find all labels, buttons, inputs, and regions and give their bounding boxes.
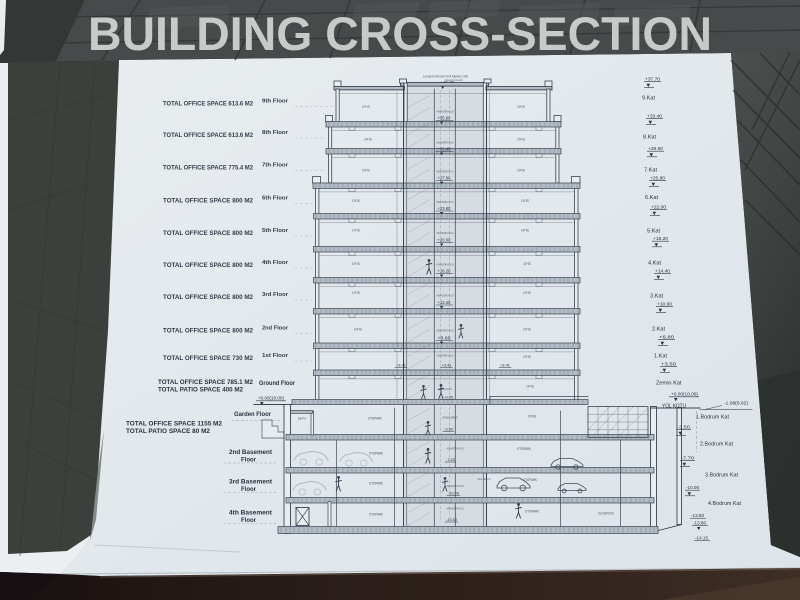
svg-text:-0.05: -0.05	[444, 396, 453, 400]
svg-text:TOTAL PATIO SPACE 400 M2: TOTAL PATIO SPACE 400 M2	[158, 387, 244, 394]
svg-text:+20.00: +20.00	[438, 238, 452, 243]
svg-text:Garden Floor: Garden Floor	[234, 412, 272, 418]
svg-text:TOTAL OFFICE SPACE 1155 M2: TOTAL OFFICE SPACE 1155 M2	[126, 420, 222, 427]
svg-text:OFIS: OFIS	[362, 105, 371, 109]
svg-text:ASANSÖR HOLÜ: ASANSÖR HOLÜ	[447, 484, 464, 488]
svg-text:OTOPARK: OTOPARK	[517, 447, 532, 451]
svg-text:ASANSÖR HOLÜ: ASANSÖR HOLÜ	[437, 141, 454, 145]
svg-text:6.Kat: 6.Kat	[645, 195, 659, 201]
svg-text:7th Floor: 7th Floor	[262, 163, 289, 169]
svg-text:TOTAL OFFICE SPACE 800 M2: TOTAL OFFICE SPACE 800 M2	[163, 329, 254, 335]
svg-text:TOTAL OFFICE SPACE 800 M2: TOTAL OFFICE SPACE 800 M2	[163, 263, 254, 269]
svg-text:2.Bodrum Kat: 2.Bodrum Kat	[700, 442, 734, 448]
svg-text:8th Floor: 8th Floor	[262, 130, 289, 136]
svg-text:OFIS: OFIS	[521, 229, 530, 233]
svg-text:OFIS: OFIS	[362, 169, 371, 173]
svg-text:2nd Basement: 2nd Basement	[229, 450, 272, 456]
svg-text:8.Kat: 8.Kat	[643, 135, 657, 141]
svg-text:SU DEPOSU: SU DEPOSU	[598, 512, 615, 516]
svg-text:ASANSÖR HOLÜ: ASANSÖR HOLÜ	[437, 200, 454, 204]
svg-text:3.Kat: 3.Kat	[650, 294, 664, 300]
svg-text:1.Bodrum Kat: 1.Bodrum Kat	[696, 415, 730, 421]
svg-text:ASANSÖR HOLÜ: ASANSÖR HOLÜ	[437, 170, 454, 174]
svg-text:OFIS: OFIS	[517, 169, 526, 173]
svg-text:-10.00: -10.00	[448, 492, 459, 496]
svg-text:OFIS: OFIS	[354, 328, 363, 332]
svg-text:-10.00: -10.00	[686, 485, 699, 490]
svg-text:ASANSÖR HOLÜ: ASANSÖR HOLÜ	[437, 329, 454, 333]
svg-text:OFIS: OFIS	[521, 199, 530, 203]
svg-text:-7.70: -7.70	[681, 456, 695, 461]
svg-text:+23.80: +23.80	[438, 206, 452, 211]
svg-text:5.Kat: 5.Kat	[647, 229, 661, 235]
svg-text:ASANSÖR HOLÜ: ASANSÖR HOLÜ	[437, 110, 454, 114]
svg-text:4th Floor: 4th Floor	[262, 260, 289, 266]
svg-text:TOTAL OFFICE SPACE 800 M2: TOTAL OFFICE SPACE 800 M2	[163, 199, 254, 205]
svg-text:2nd Floor: 2nd Floor	[262, 326, 289, 332]
svg-text:GİRİŞ HOLÜ: GİRİŞ HOLÜ	[438, 386, 452, 391]
svg-text:6th Floor: 6th Floor	[262, 196, 289, 202]
svg-text:YANGIN MERD.: YANGIN MERD.	[442, 416, 458, 420]
svg-text:OFIS: OFIS	[352, 262, 361, 266]
svg-text:OFIS: OFIS	[352, 199, 361, 203]
svg-text:OTOPARK: OTOPARK	[525, 510, 540, 514]
svg-text:ASANSÖR HOLÜ: ASANSÖR HOLÜ	[437, 294, 454, 298]
svg-text:OFIS: OFIS	[526, 385, 535, 389]
svg-text:+37.70: +37.70	[645, 77, 660, 82]
svg-text:3rd Basement: 3rd Basement	[229, 480, 272, 486]
svg-text:TOTAL OFFICE SPACE 800 M2: TOTAL OFFICE SPACE 800 M2	[163, 295, 254, 301]
svg-text:+10.60: +10.60	[657, 302, 672, 307]
svg-text:5th Floor: 5th Floor	[262, 228, 289, 234]
svg-text:+0.00(10.00): +0.00(10.00)	[671, 392, 698, 397]
svg-text:+0.00(10.00): +0.00(10.00)	[258, 396, 284, 401]
svg-text:OTOPARK: OTOPARK	[369, 513, 384, 517]
svg-text:3.Bodrum Kat: 3.Bodrum Kat	[705, 473, 739, 479]
svg-text:TOTAL OFFICE SPACE 730 M2: TOTAL OFFICE SPACE 730 M2	[163, 356, 254, 362]
svg-text:Floor: Floor	[241, 487, 257, 493]
svg-text:-3.50: -3.50	[444, 428, 453, 432]
svg-text:TOTAL OFFICE SPACE 800 M2: TOTAL OFFICE SPACE 800 M2	[163, 231, 254, 237]
svg-text:Zemin Kat: Zemin Kat	[656, 381, 682, 387]
svg-text:-1.08(8.92): -1.08(8.92)	[724, 401, 749, 406]
svg-text:9.Kat: 9.Kat	[642, 96, 656, 102]
svg-text:-13.50: -13.50	[691, 513, 705, 518]
svg-text:OFIS: OFIS	[517, 138, 526, 142]
svg-text:Floor: Floor	[241, 458, 257, 464]
svg-text:1.Kat: 1.Kat	[654, 354, 668, 360]
svg-text:+18.20: +18.20	[653, 236, 668, 241]
svg-text:OFIS: OFIS	[352, 291, 361, 295]
svg-text:+27.60: +27.60	[438, 176, 452, 181]
svg-text:7.Kat: 7.Kat	[644, 168, 658, 174]
svg-text:1st Floor: 1st Floor	[262, 353, 289, 359]
svg-text:TOTAL PATIO SPACE 80 M2: TOTAL PATIO SPACE 80 M2	[126, 428, 210, 435]
svg-text:OFIS: OFIS	[364, 138, 373, 142]
svg-text:OFIS: OFIS	[528, 415, 537, 419]
svg-text:BUILDING CROSS-SECTION: BUILDING CROSS-SECTION	[88, 7, 712, 60]
svg-text:OFIS: OFIS	[523, 355, 532, 359]
svg-text:3rd Floor: 3rd Floor	[262, 292, 289, 298]
svg-text:2.Kat: 2.Kat	[652, 327, 666, 333]
svg-text:OFIS: OFIS	[523, 328, 532, 332]
svg-text:DEPO: DEPO	[298, 417, 307, 421]
svg-text:+33.40: +33.40	[647, 114, 662, 119]
svg-text:-3.50: -3.50	[677, 425, 691, 430]
svg-text:-14.15: -14.15	[695, 536, 709, 541]
svg-text:TOTAL OFFICE SPACE 613.6 M2: TOTAL OFFICE SPACE 613.6 M2	[163, 133, 254, 139]
svg-text:TOTAL OFFICE SPACE 785.1 M2: TOTAL OFFICE SPACE 785.1 M2	[158, 379, 254, 386]
svg-text:ASANSÖR HOLÜ: ASANSÖR HOLÜ	[437, 231, 454, 235]
svg-text:Veh.Ramp: Veh.Ramp	[478, 477, 491, 481]
svg-text:+8.60: +8.60	[438, 336, 452, 341]
svg-text:Ground Floor: Ground Floor	[259, 381, 296, 387]
svg-text:OTOPARK: OTOPARK	[369, 482, 384, 486]
svg-text:YOL KOTU: YOL KOTU	[662, 404, 686, 410]
svg-text:OTOPARK: OTOPARK	[368, 417, 383, 421]
svg-text:OTOPARK: OTOPARK	[369, 452, 384, 456]
svg-text:+22.00: +22.00	[651, 205, 666, 210]
svg-text:+35.60: +35.60	[438, 116, 452, 121]
svg-text:+3.41: +3.41	[442, 364, 452, 368]
svg-text:ASANSÖR HOLÜ: ASANSÖR HOLÜ	[437, 354, 454, 358]
svg-text:+3.41: +3.41	[500, 364, 510, 368]
svg-text:+14.40: +14.40	[655, 269, 670, 274]
svg-text:+3.41: +3.41	[396, 364, 406, 368]
svg-text:+12.40: +12.40	[438, 300, 452, 305]
svg-text:TOTAL OFFICE SPACE 613.6 M2: TOTAL OFFICE SPACE 613.6 M2	[163, 102, 254, 108]
svg-text:-13.50: -13.50	[446, 518, 457, 522]
svg-text:+29.60: +29.60	[648, 146, 663, 151]
svg-text:OFIS: OFIS	[352, 229, 361, 233]
svg-text:TOTAL OFFICE SPACE 775.4 M2: TOTAL OFFICE SPACE 775.4 M2	[163, 166, 254, 172]
svg-text:+16.20: +16.20	[438, 269, 452, 274]
svg-text:4.Bodrum Kat: 4.Bodrum Kat	[708, 501, 742, 507]
svg-text:+31.40: +31.40	[438, 147, 452, 152]
svg-text:ASANSÖR HOLÜ: ASANSÖR HOLÜ	[437, 263, 454, 267]
svg-text:Floor: Floor	[241, 518, 257, 524]
svg-text:-13.80: -13.80	[693, 521, 707, 526]
svg-text:OFIS: OFIS	[523, 262, 532, 266]
svg-text:ASANSÖR HOLÜ: ASANSÖR HOLÜ	[447, 447, 464, 451]
svg-text:+6.80: +6.80	[659, 335, 675, 340]
svg-text:+25.80: +25.80	[650, 176, 665, 181]
svg-text:+3.50: +3.50	[661, 362, 677, 367]
svg-text:4th Basement: 4th Basement	[229, 511, 272, 517]
svg-text:9th Floor: 9th Floor	[262, 99, 289, 105]
svg-text:4.Kat: 4.Kat	[648, 261, 662, 267]
svg-text:ASANSÖR HOLÜ: ASANSÖR HOLÜ	[447, 507, 464, 511]
svg-text:-7.20: -7.20	[446, 458, 455, 462]
svg-text:OFIS: OFIS	[517, 105, 526, 109]
svg-text:OFIS: OFIS	[523, 291, 532, 295]
